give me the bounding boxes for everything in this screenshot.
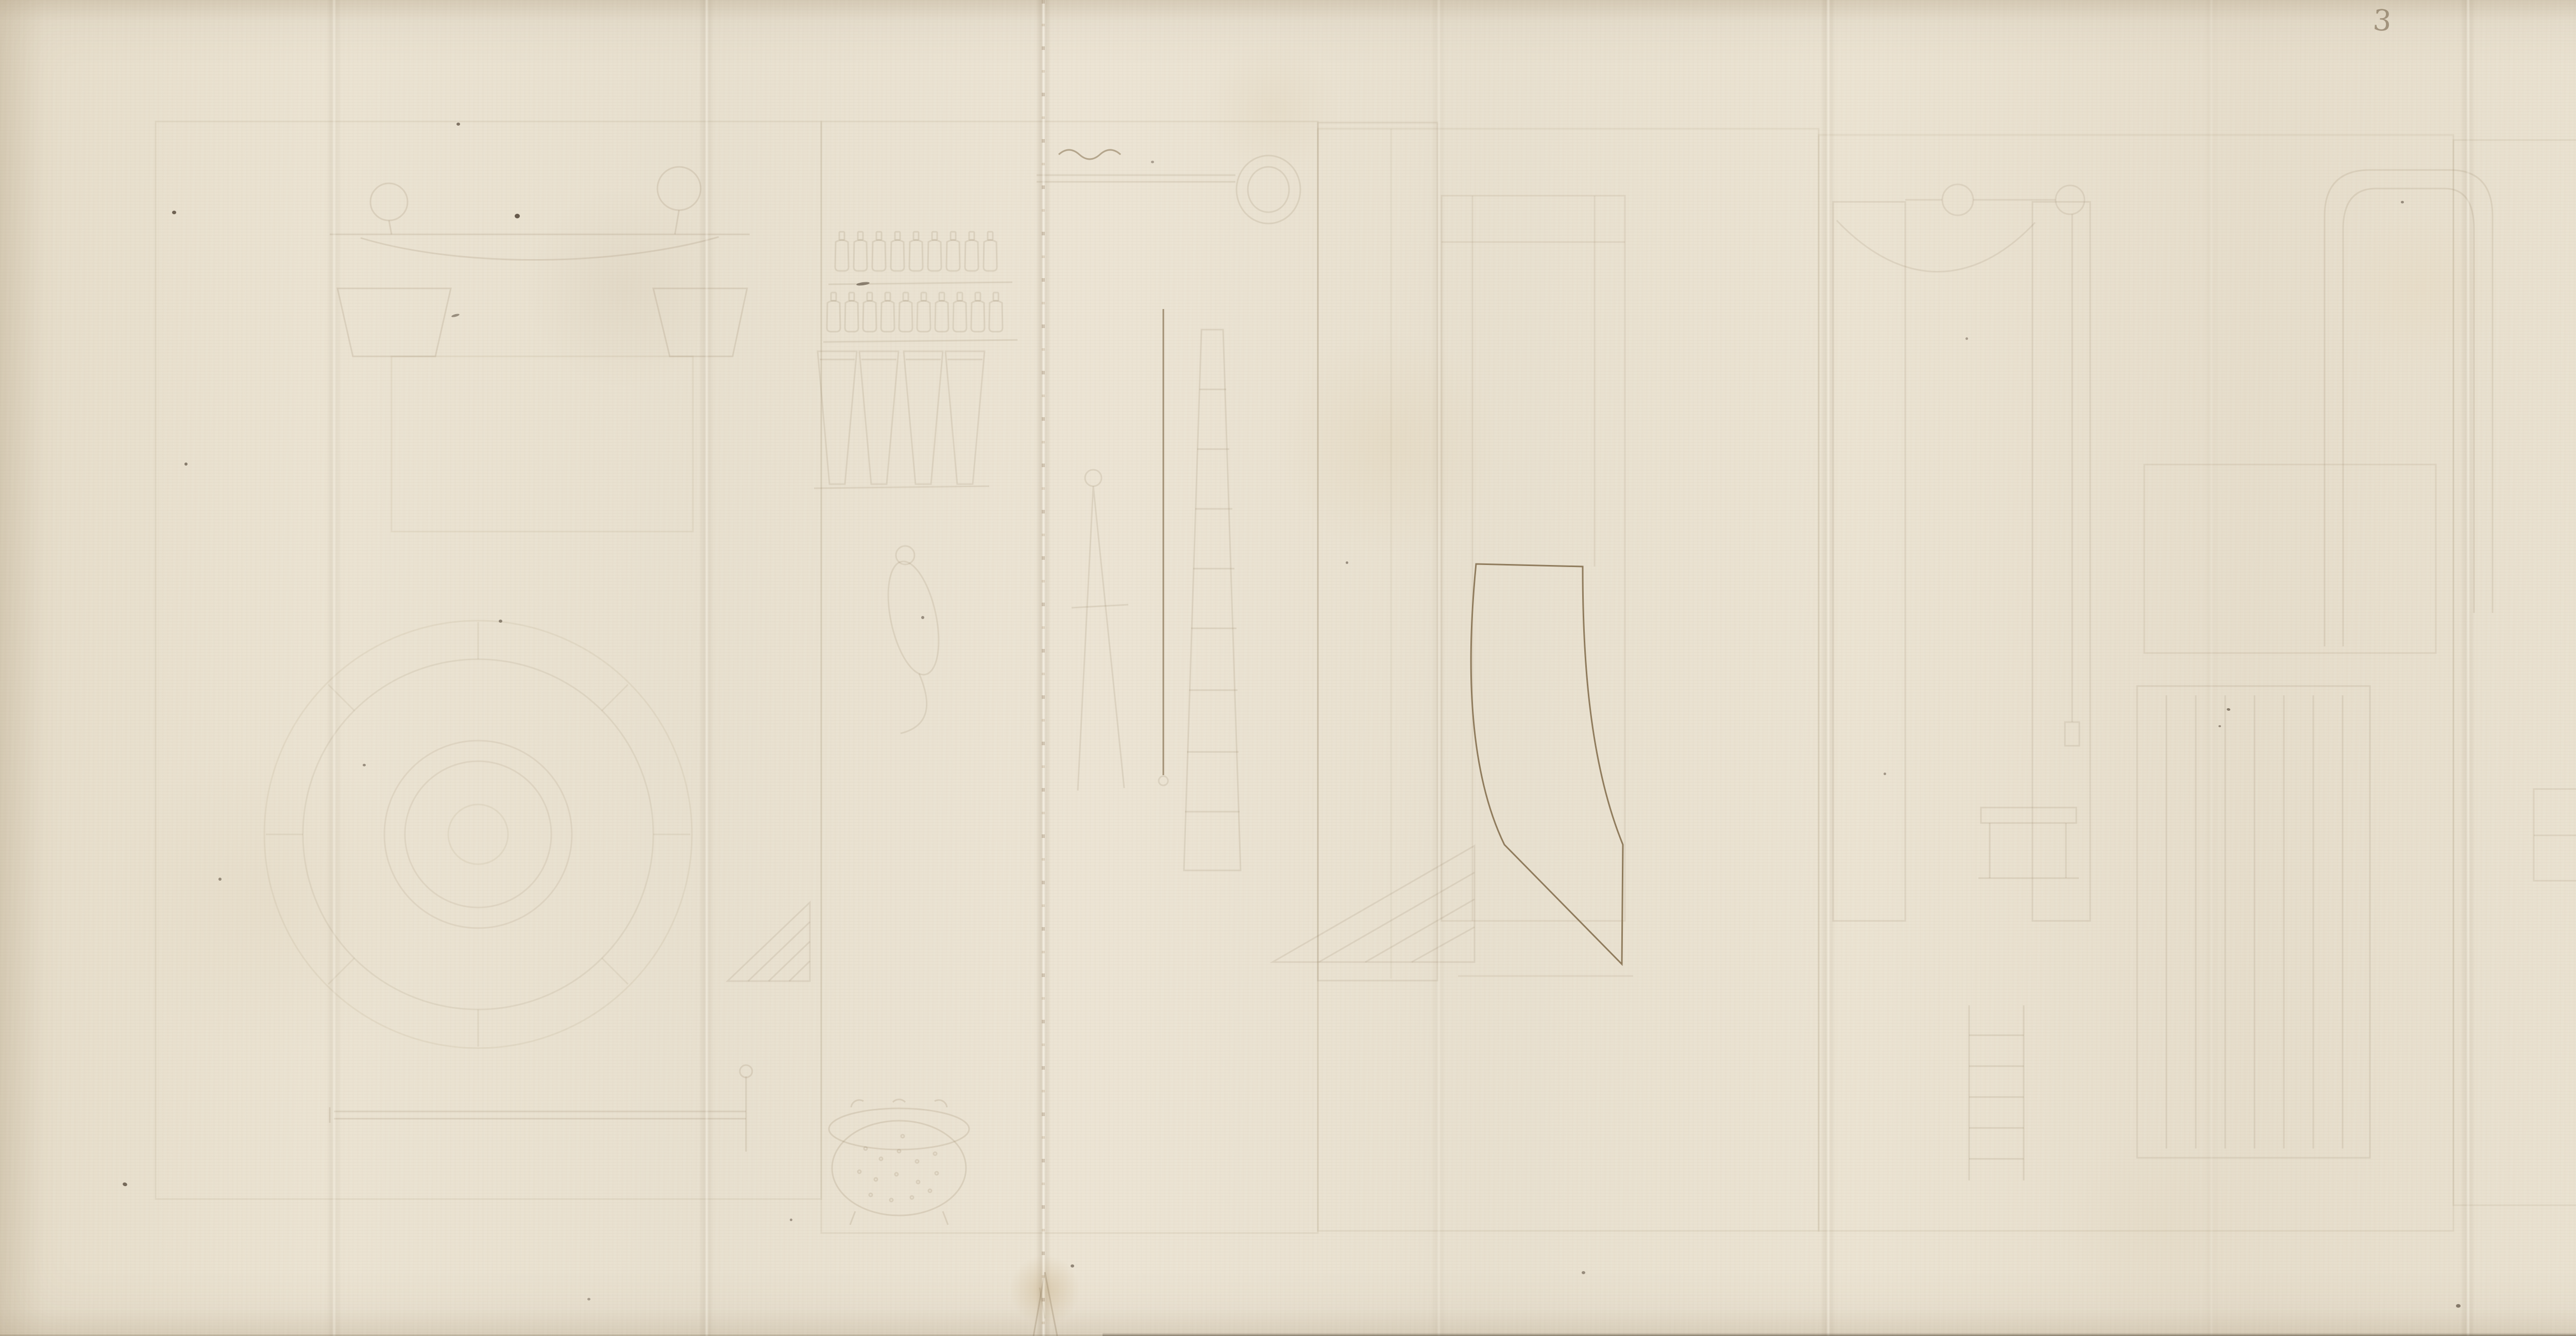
suspension-gantry <box>330 167 750 532</box>
colander-basket <box>829 1100 969 1225</box>
furnace-block <box>2144 465 2436 653</box>
foxing-speck <box>587 1298 590 1300</box>
foxing-speck <box>921 616 924 619</box>
show-through-engraving-layer <box>0 0 2576 1336</box>
long-rod <box>330 1065 752 1152</box>
foxing-speck <box>184 463 188 466</box>
foxing-speck <box>1151 161 1154 163</box>
foxing-speck <box>1965 337 1968 340</box>
fold-crease <box>2460 0 2476 1336</box>
hatched-wedge <box>727 846 1475 981</box>
foxing-speck <box>2401 201 2404 203</box>
foxing-speck <box>1071 1264 1074 1268</box>
basket-stipple <box>858 1135 938 1202</box>
chain-frames <box>1833 184 2090 921</box>
foxing-speck <box>1884 773 1886 775</box>
stand-table <box>1978 808 2079 878</box>
foxing-speck <box>1346 561 1348 564</box>
foxing-speck <box>1582 1271 1585 1274</box>
fold-crease <box>1036 0 1051 1336</box>
fold-crease <box>2204 0 2219 1336</box>
boot-retort <box>1471 564 1623 964</box>
foxing-speck <box>2218 725 2221 727</box>
bottle-rows <box>823 232 1018 342</box>
horn-retort <box>879 546 948 733</box>
fold-crease <box>1431 0 1446 1336</box>
fold-crease <box>699 0 714 1336</box>
foxing-speck <box>790 1219 792 1221</box>
foxing-speck <box>515 214 520 218</box>
tongs <box>1072 470 1128 791</box>
fold-crease-wear <box>1042 0 1045 1336</box>
foxing-speck <box>456 123 460 126</box>
foxing-speck <box>363 764 366 766</box>
fold-crease <box>1820 0 1836 1336</box>
foxing-speck <box>499 620 502 623</box>
screw-column <box>1184 330 1241 870</box>
conical-jars <box>814 351 989 488</box>
tall-frame <box>1442 196 1633 976</box>
dark-band <box>1318 123 1437 981</box>
foxing-speck <box>218 878 222 881</box>
scan-bottom-edge-shadow <box>1103 1333 2576 1336</box>
handwritten-plate-number: 3 <box>2372 4 2393 38</box>
plate-verso-sheet: BIBLIOTHÈQUE BORDEAUX 3 <box>0 0 2576 1336</box>
ladder <box>1969 1005 2024 1180</box>
small-frame <box>2534 789 2576 1177</box>
fold-crease <box>326 0 342 1336</box>
lifting-bar <box>1037 150 1300 785</box>
pipe-radiator <box>2137 686 2370 1158</box>
foxing-speck <box>2456 1304 2461 1308</box>
foxing-speck <box>172 211 176 214</box>
